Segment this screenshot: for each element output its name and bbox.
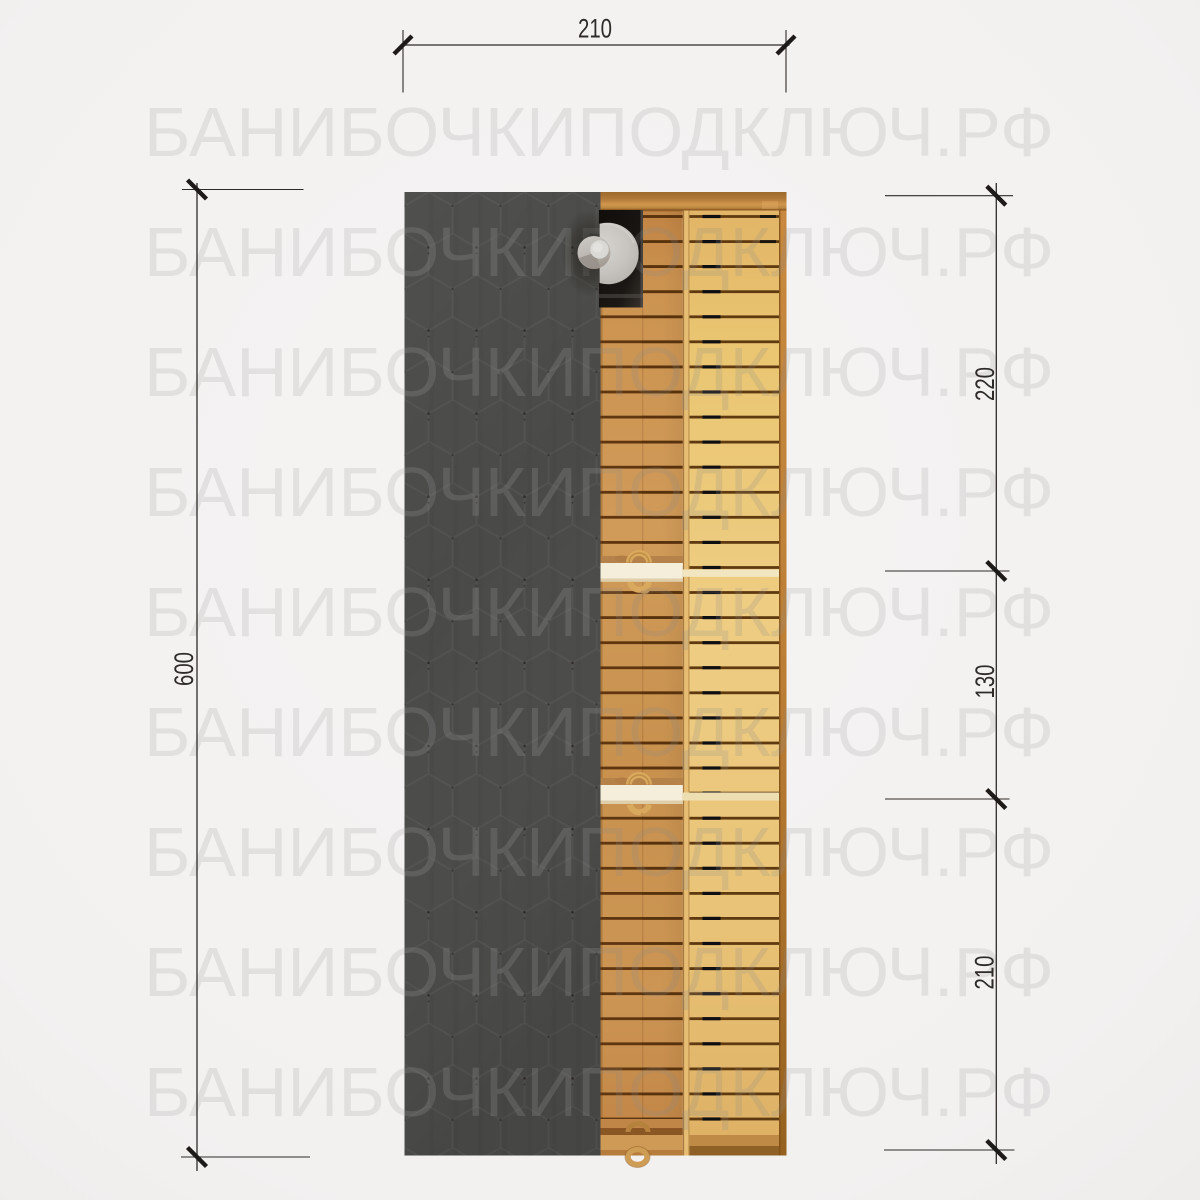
svg-text:600: 600 [169, 652, 199, 686]
svg-text:210: 210 [578, 14, 612, 44]
svg-text:130: 130 [970, 665, 1000, 699]
svg-text:210: 210 [970, 956, 1000, 990]
svg-text:БАНИБОЧКИПОДКЛЮЧ.РФ: БАНИБОЧКИПОДКЛЮЧ.РФ [144, 93, 1054, 171]
svg-text:220: 220 [970, 367, 1000, 401]
